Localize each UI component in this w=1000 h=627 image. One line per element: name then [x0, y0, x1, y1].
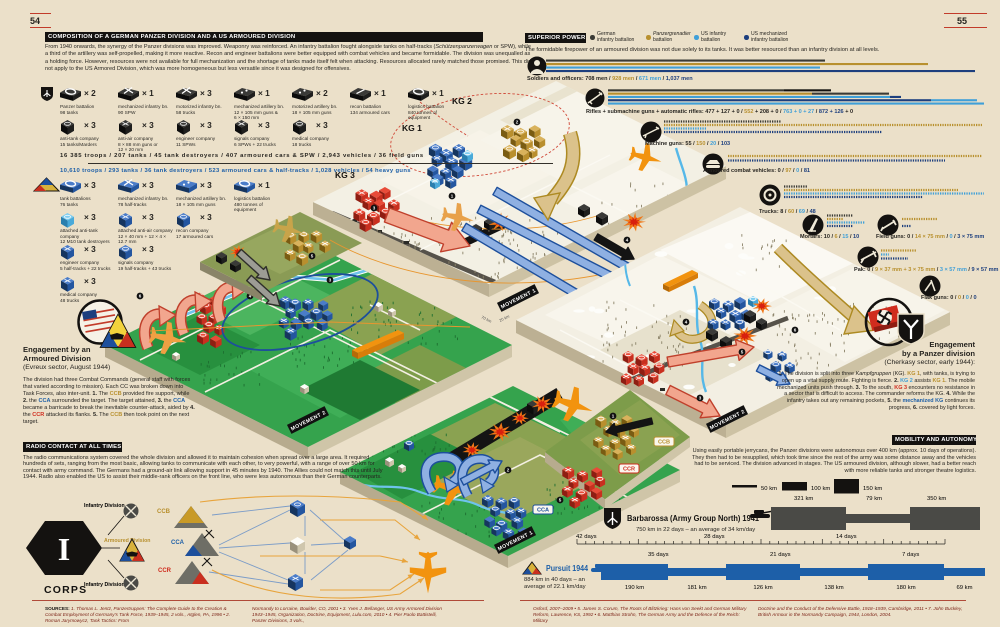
svg-text:35 days: 35 days — [648, 552, 669, 558]
svg-text:28 days: 28 days — [704, 534, 725, 540]
svg-text:750 km in 22 days – an average: 750 km in 22 days – an average of 34 km/… — [636, 527, 755, 533]
svg-text:138 km: 138 km — [824, 585, 843, 591]
svg-text:100 km: 100 km — [811, 486, 830, 492]
svg-text:7 days: 7 days — [902, 552, 919, 558]
svg-text:884 km in 40 days – an: 884 km in 40 days – an — [524, 577, 585, 583]
svg-text:21 days: 21 days — [770, 552, 791, 558]
svg-text:69 km: 69 km — [956, 585, 972, 591]
svg-text:average of 22.1 km/day: average of 22.1 km/day — [524, 584, 586, 590]
svg-text:Pursuit 1944: Pursuit 1944 — [546, 564, 588, 573]
svg-text:79 km: 79 km — [866, 496, 882, 502]
svg-text:42 days: 42 days — [576, 534, 597, 540]
svg-text:181 km: 181 km — [687, 585, 706, 591]
svg-text:150 km: 150 km — [863, 486, 882, 492]
svg-text:14 days: 14 days — [836, 534, 857, 540]
svg-text:321 km: 321 km — [794, 496, 813, 502]
svg-text:190 km: 190 km — [625, 585, 644, 591]
svg-text:126 km: 126 km — [753, 585, 772, 591]
svg-text:350 km: 350 km — [927, 496, 946, 502]
svg-text:Barbarossa (Army Group North): Barbarossa (Army Group North) 1941 — [627, 514, 760, 523]
svg-text:180 km: 180 km — [896, 585, 915, 591]
svg-text:50 km: 50 km — [761, 486, 777, 492]
